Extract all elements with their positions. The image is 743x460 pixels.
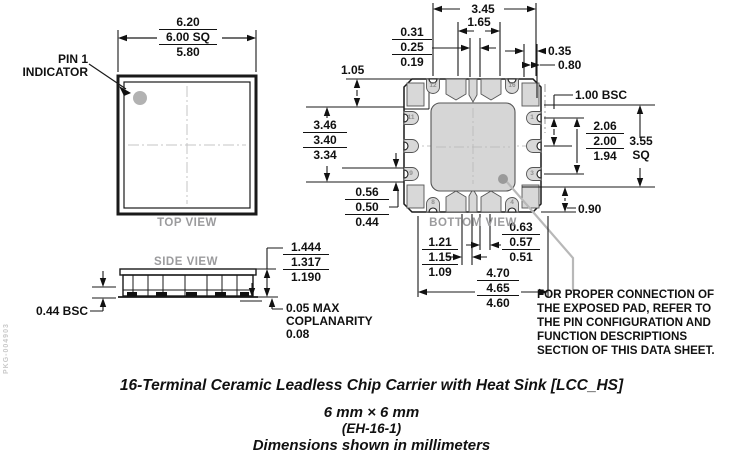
terminal-number-3: 3 — [525, 170, 539, 178]
caption-units: Dimensions shown in millimeters — [0, 437, 743, 454]
terminal-number-9: 9 — [404, 170, 418, 178]
caption-package-code: (EH-16-1) — [0, 421, 743, 436]
pad-span-dimension: 2.06 2.00 1.94 — [586, 119, 624, 163]
dim-1-65: 1.65 — [459, 15, 499, 29]
dim-1-00-bsc: 1.00 BSC — [575, 88, 627, 102]
dim-0-35: 0.35 — [548, 44, 571, 58]
terminal-number-16: 16 — [505, 82, 519, 90]
terminal-number-8: 8 — [426, 199, 440, 207]
side-terminal-span-dimension: 3.46 3.40 3.34 — [303, 118, 347, 162]
bottom-view-label: BOTTOM VIEW — [427, 217, 519, 229]
dim-0-90: 0.90 — [578, 202, 601, 216]
package-outline-drawing: PIN 1INDICATOR 6.20 6.00 SQ 5.80 TOP VIE… — [0, 0, 743, 460]
terminal-width-dimension: 0.31 0.25 0.19 — [392, 25, 432, 69]
dim-3-45: 3.45 — [462, 2, 504, 16]
terminal-number-12: 12 — [426, 82, 440, 90]
side-view-height-dimension: 1.444 1.317 1.190 — [283, 240, 329, 284]
bottom-gap-dimension: 1.21 1.15 1.09 — [422, 235, 458, 279]
overall-span-dimension: 4.70 4.65 4.60 — [477, 266, 519, 310]
terminal-number-4: 4 — [505, 199, 519, 207]
side-view-label: SIDE VIEW — [145, 256, 227, 268]
terminal-number-1: 1 — [525, 114, 539, 122]
caption-title: 16-Terminal Ceramic Leadless Chip Carrie… — [0, 377, 743, 395]
pin1-indicator-label: PIN 1INDICATOR — [10, 53, 88, 79]
drawing-number-watermark: PKG-004903 — [3, 323, 10, 374]
lead-pitch-dimension: 0.44 BSC — [26, 304, 88, 318]
terminal-number-11: 11 — [404, 114, 418, 122]
exposed-pad-note: FOR PROPER CONNECTION OF THE EXPOSED PAD… — [537, 288, 741, 358]
dim-3-55-sq: 3.55SQ — [622, 134, 660, 162]
dim-0-80: 0.80 — [558, 58, 581, 72]
top-view-label: TOP VIEW — [146, 217, 228, 229]
terminal-pitch-dimension: 0.56 0.50 0.44 — [345, 185, 389, 229]
dim-1-05: 1.05 — [341, 63, 364, 77]
caption-size: 6 mm × 6 mm — [0, 404, 743, 421]
top-view-size-dimension: 6.20 6.00 SQ 5.80 — [159, 15, 217, 59]
coplanarity-note: 0.05 MAX COPLANARITY 0.08 — [286, 302, 373, 341]
pin1-indicator-dot — [133, 91, 147, 105]
